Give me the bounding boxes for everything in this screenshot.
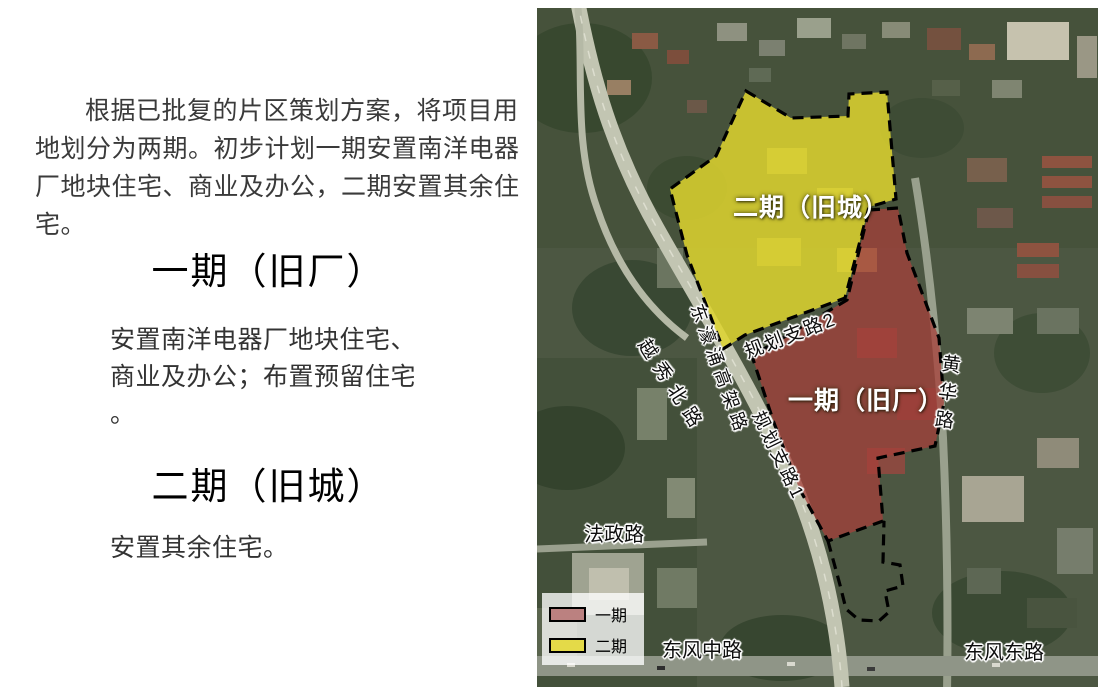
satellite-map: 二期（旧城） 一期（旧厂） 越秀北路 东濠涌高架路 规划支路2 规划支路1 黄华… bbox=[537, 8, 1098, 687]
road-label-dongfeng-middle: 东风中路 bbox=[662, 634, 742, 663]
satellite-imagery bbox=[537, 8, 1098, 687]
phase1-description: 安置南洋电器厂地块住宅、 商业及办公；布置预留住宅 。 bbox=[110, 322, 440, 433]
legend-item-phase1: 一期 bbox=[549, 602, 637, 626]
legend-item-phase2: 二期 bbox=[549, 633, 637, 657]
map-legend: 一期 二期 bbox=[542, 593, 644, 665]
intro-paragraph: 根据已批复的片区策划方案，将项目用地划分为两期。初步计划一期安置南洋电器厂地块住… bbox=[35, 92, 535, 244]
text-panel: 根据已批复的片区策划方案，将项目用地划分为两期。初步计划一期安置南洋电器厂地块住… bbox=[0, 0, 537, 695]
phase1-color-swatch bbox=[549, 607, 586, 622]
phase2-color-swatch bbox=[549, 638, 586, 653]
phase1-zone-label: 一期（旧厂） bbox=[788, 381, 944, 417]
phase1-heading: 一期（旧厂） bbox=[0, 241, 537, 295]
phase2-zone-label: 二期（旧城） bbox=[733, 188, 889, 224]
slide: 根据已批复的片区策划方案，将项目用地划分为两期。初步计划一期安置南洋电器厂地块住… bbox=[0, 0, 1116, 695]
legend-label-phase1: 一期 bbox=[595, 602, 627, 626]
phase2-heading: 二期（旧城） bbox=[0, 456, 537, 510]
legend-label-phase2: 二期 bbox=[595, 633, 627, 657]
road-label-dongfeng-east: 东风东路 bbox=[964, 636, 1044, 665]
phase2-description: 安置其余住宅。 bbox=[110, 530, 440, 567]
road-label-fazheng: 法政路 bbox=[584, 518, 644, 547]
